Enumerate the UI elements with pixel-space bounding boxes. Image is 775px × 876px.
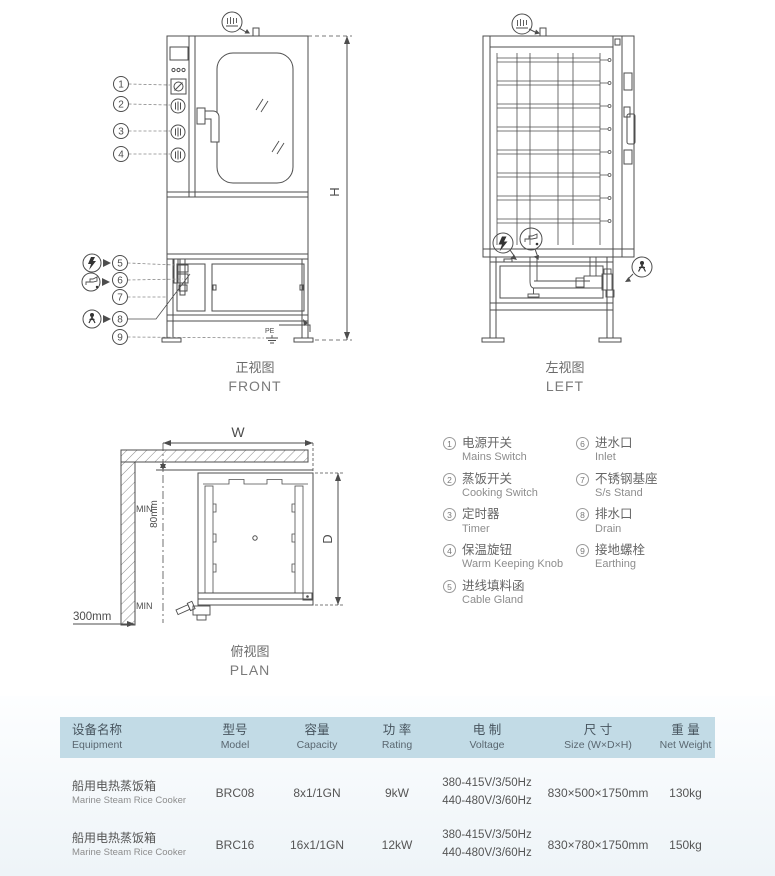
steam-vent-icon [512, 14, 540, 35]
timer-knob [171, 125, 185, 139]
header-voltage: 电 制Voltage [434, 723, 540, 752]
dim-h-label: H [327, 187, 342, 196]
water-tap-icon [520, 228, 542, 260]
voltage-line-1: 380-415V/3/50Hz [434, 827, 540, 845]
callout-4: 4 [118, 150, 124, 161]
callout-9: 9 [117, 333, 123, 344]
table-row-brc16: 船用电热蒸饭箱 Marine Steam Rice Cooker BRC16 1… [60, 819, 715, 871]
legend-num-8: 8 [576, 508, 589, 521]
drain-fittings [175, 601, 210, 620]
door-handle [197, 108, 219, 142]
header-rating: 功 率Rating [360, 723, 434, 752]
spec-table-body: 船用电热蒸饭箱 Marine Steam Rice Cooker BRC08 8… [60, 767, 715, 871]
indicator-lights [172, 68, 185, 71]
legend-item-5: 5 进线填料函 Cable Gland [443, 579, 576, 608]
spec-table: 设备名称Equipment 型号Model 容量Capacity 功 率Rati… [60, 717, 715, 871]
plan-caption-en: PLAN [175, 661, 325, 680]
dim-w-label: W [231, 424, 245, 440]
min-side-label: MIN [136, 601, 153, 611]
pe-label: PE [265, 328, 275, 335]
plan-caption-zh: 俯视图 [175, 643, 325, 661]
person-icon [625, 257, 652, 282]
legend-num-2: 2 [443, 473, 456, 486]
equipment-en: Marine Steam Rice Cooker [72, 794, 196, 807]
cooking-switch-knob [171, 99, 185, 113]
legend-item-3: 3 定时器 Timer [443, 507, 576, 536]
weight-value: 150kg [656, 838, 715, 852]
stainless-stand [482, 257, 621, 342]
legend-num-4: 4 [443, 544, 456, 557]
equipment-en: Marine Steam Rice Cooker [72, 846, 196, 859]
dim-d-label: D [320, 534, 335, 543]
tray-racks [497, 58, 611, 223]
callout-5: 5 [117, 259, 123, 270]
left-view-drawing [440, 8, 690, 358]
plan-view-drawing: W D MIN 80mm MIN 300mm [40, 418, 370, 643]
legend-num-1: 1 [443, 437, 456, 450]
weight-value: 130kg [656, 786, 715, 800]
front-caption-zh: 正视图 [180, 359, 330, 377]
legend-num-5: 5 [443, 580, 456, 593]
callout-8: 8 [117, 315, 123, 326]
table-row-brc08: 船用电热蒸饭箱 Marine Steam Rice Cooker BRC08 8… [60, 767, 715, 819]
front-view-drawing: 1 2 3 4 5 6 7 8 9 PE H [60, 8, 370, 358]
callout-7: 7 [117, 293, 123, 304]
header-model: 型号Model [196, 723, 274, 752]
callout-1: 1 [118, 80, 124, 91]
display-window [170, 47, 188, 60]
front-view-caption: 正视图 FRONT [180, 359, 330, 395]
equipment-zh: 船用电热蒸饭箱 [72, 831, 196, 845]
legend-num-9: 9 [576, 544, 589, 557]
voltage-line-1: 380-415V/3/50Hz [434, 775, 540, 793]
rating-value: 12kW [360, 838, 434, 852]
capacity-value: 8x1/1GN [274, 786, 360, 800]
person-icon [83, 310, 111, 328]
door-glass [217, 53, 293, 183]
legend-num-6: 6 [576, 437, 589, 450]
legend-item-8: 8 排水口 Drain [576, 507, 736, 536]
warm-keeping-knob [171, 148, 185, 162]
model-value: BRC16 [196, 838, 274, 852]
rating-value: 9kW [360, 786, 434, 800]
equipment-zh: 船用电热蒸饭箱 [72, 779, 196, 793]
callouts-front [113, 77, 129, 345]
legend-item-6: 6 进水口 Inlet [576, 436, 736, 465]
callout-2: 2 [118, 100, 124, 111]
legend-num-3: 3 [443, 508, 456, 521]
voltage-line-2: 440-480V/3/60Hz [434, 793, 540, 811]
header-equipment: 设备名称Equipment [60, 723, 196, 752]
mains-switch [171, 79, 186, 94]
steam-vent-icon [222, 12, 250, 34]
legend-item-2: 2 蒸饭开关 Cooking Switch [443, 472, 576, 501]
electricity-icon [83, 254, 111, 272]
voltage-line-2: 440-480V/3/60Hz [434, 845, 540, 863]
legend-num-7: 7 [576, 473, 589, 486]
header-weight: 重 量Net Weight [656, 723, 715, 752]
callout-3: 3 [118, 127, 124, 138]
water-tap-icon [82, 273, 110, 291]
dim-300mm-label: 300mm [73, 611, 111, 623]
size-value: 830×500×1750mm [540, 786, 656, 800]
capacity-value: 16x1/1GN [274, 838, 360, 852]
dim-80mm-label: 80mm [149, 500, 160, 528]
size-value: 830×780×1750mm [540, 838, 656, 852]
door-hinge-handle [624, 73, 635, 164]
spec-table-header: 设备名称Equipment 型号Model 容量Capacity 功 率Rati… [60, 717, 715, 758]
legend-item-4: 4 保温旋钮 Warm Keeping Knob [443, 543, 576, 572]
left-caption-zh: 左视图 [490, 359, 640, 377]
left-caption-en: LEFT [490, 377, 640, 396]
cabinet-footprint [198, 473, 313, 605]
left-view-caption: 左视图 LEFT [490, 359, 640, 395]
legend-item-9: 9 接地螺栓 Earthing [576, 543, 736, 572]
datasheet-page: 1 2 3 4 5 6 7 8 9 PE H [0, 0, 775, 876]
plan-view-caption: 俯视图 PLAN [175, 643, 325, 679]
legend-item-7: 7 不锈钢基座 S/s Stand [576, 472, 736, 501]
legend-item-1: 1 电源开关 Mains Switch [443, 436, 576, 465]
front-caption-en: FRONT [180, 377, 330, 396]
water-piping [528, 257, 614, 297]
header-capacity: 容量Capacity [274, 723, 360, 752]
model-value: BRC08 [196, 786, 274, 800]
callout-6: 6 [117, 276, 123, 287]
parts-legend: 1 电源开关 Mains Switch 2 蒸饭开关 Cooking Switc… [443, 436, 736, 614]
header-size: 尺 寸Size (W×D×H) [540, 723, 656, 752]
